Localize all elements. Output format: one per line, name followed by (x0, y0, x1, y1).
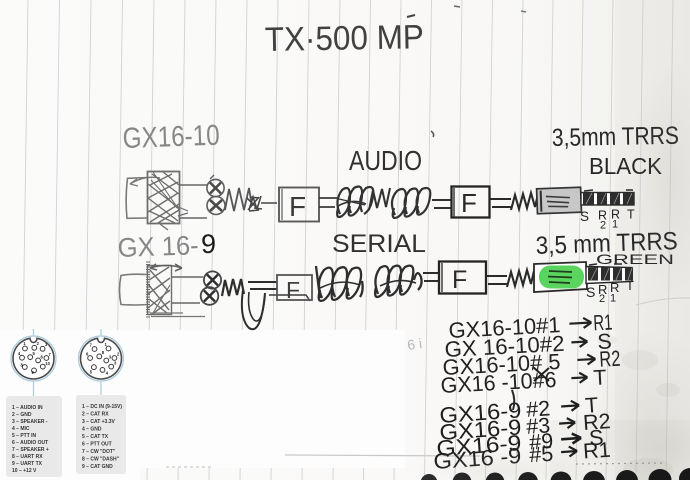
svg-text:6 – AUDIO OUT: 6 – AUDIO OUT (12, 440, 48, 446)
svg-text:SERIAL: SERIAL (332, 230, 426, 258)
svg-text:7 – SPEAKER +: 7 – SPEAKER + (12, 447, 49, 453)
svg-text:7 – CW "DOT": 7 – CW "DOT" (82, 449, 116, 455)
svg-text:S: S (586, 284, 595, 300)
svg-text:4 – MIC: 4 – MIC (12, 426, 30, 432)
svg-text:S: S (580, 209, 589, 224)
svg-text:8 – UART RX: 8 – UART RX (12, 454, 43, 460)
svg-text:2: 2 (599, 293, 605, 305)
svg-text:9 – UART TX: 9 – UART TX (12, 461, 43, 467)
svg-text:GX16-10: GX16-10 (122, 120, 220, 155)
svg-text:3 – SPEAKER -: 3 – SPEAKER - (12, 419, 48, 425)
svg-text:10 – +12 V: 10 – +12 V (12, 468, 37, 474)
svg-text:6 – PTT OUT: 6 – PTT OUT (82, 442, 112, 448)
svg-text:10: 10 (45, 361, 50, 366)
svg-text:AUDIO: AUDIO (349, 145, 422, 176)
svg-text:8 – CW "DASH": 8 – CW "DASH" (82, 457, 120, 463)
svg-text:1 – DC IN (9-15V): 1 – DC IN (9-15V) (82, 404, 122, 410)
svg-text:2 – CAT RX: 2 – CAT RX (82, 412, 109, 418)
svg-text:5 – CAT TX: 5 – CAT TX (82, 434, 109, 440)
svg-text:9: 9 (201, 229, 216, 259)
svg-text:F: F (461, 188, 477, 218)
svg-text:TX·500 MP: TX·500 MP (264, 18, 424, 59)
svg-text:F: F (289, 191, 306, 222)
svg-text:9 – CAT GND: 9 – CAT GND (82, 464, 113, 470)
svg-text:GX 16-: GX 16- (117, 230, 199, 263)
svg-text:2 – GND: 2 – GND (12, 412, 32, 418)
svg-text:6 i: 6 i (406, 335, 423, 353)
svg-text:4 – GND: 4 – GND (82, 427, 102, 433)
svg-text:F: F (452, 266, 467, 294)
svg-text:F: F (286, 277, 300, 303)
svg-text:1 – AUDIO IN: 1 – AUDIO IN (12, 405, 43, 411)
svg-text:5 – PTT IN: 5 – PTT IN (12, 433, 37, 439)
svg-text:1: 1 (610, 293, 616, 305)
svg-text:3 – CAT +3.3V: 3 – CAT +3.3V (82, 419, 116, 425)
svg-text:T: T (626, 278, 634, 293)
